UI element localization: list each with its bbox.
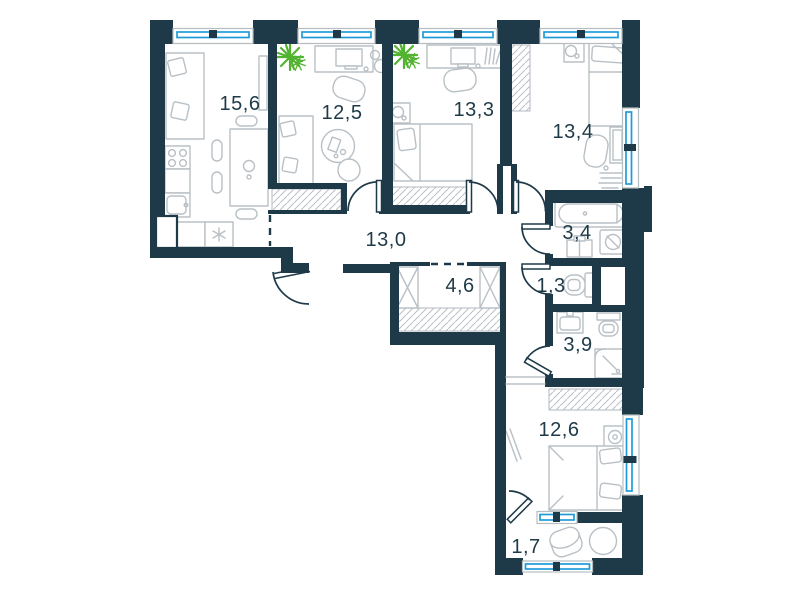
- room-area-label: 3,9: [563, 334, 592, 356]
- room-wc: [564, 273, 594, 297]
- room-area-label: 13,0: [366, 229, 407, 251]
- plant-icon: [277, 44, 308, 73]
- threshold: [506, 377, 545, 384]
- toilet-icon: [597, 313, 620, 320]
- chair-icon: [236, 116, 257, 126]
- room-living-kitchen: [164, 53, 268, 247]
- door-icon: [514, 181, 546, 213]
- wardrobe-icon: [397, 308, 501, 331]
- room-area-label: 13,4: [553, 121, 594, 143]
- monitor-icon: [451, 48, 475, 64]
- chair-icon: [236, 209, 257, 219]
- pillow-icon: [397, 128, 417, 151]
- balcony-table-icon: [590, 528, 617, 555]
- office-chair-icon: [330, 74, 367, 105]
- pillow-icon: [171, 102, 190, 121]
- stove-icon: [165, 146, 190, 169]
- coffee-table-icon: [338, 159, 360, 181]
- balcony-chair-icon: [547, 525, 584, 560]
- wardrobe-icon: [272, 189, 341, 211]
- pillow-icon: [167, 57, 186, 76]
- chair-icon: [212, 140, 222, 161]
- room-area-label: 1,3: [536, 275, 565, 297]
- pillow-icon: [280, 121, 297, 138]
- door-icon: [467, 181, 499, 213]
- room-area-label: 4,6: [445, 275, 474, 297]
- mirror-icon: [506, 429, 521, 461]
- room-area-label: 12,5: [322, 102, 363, 124]
- floor-plan-page: 15,6 12,5 13,3 13,4 13,0 3,4 1,3 4,6 3,9…: [0, 0, 800, 600]
- shaft: [600, 266, 626, 306]
- pillow-icon: [599, 483, 622, 499]
- pillow-icon: [599, 448, 622, 464]
- pillow-icon: [591, 46, 625, 63]
- chair-icon: [212, 172, 222, 193]
- room-area-label: 1,7: [511, 536, 540, 558]
- door-icon: [522, 224, 550, 254]
- room-area-label: 15,6: [220, 93, 261, 115]
- window-icon: [623, 415, 639, 495]
- floor-plan: 15,6 12,5 13,3 13,4 13,0 3,4 1,3 4,6 3,9…: [0, 0, 800, 600]
- room-area-label: 12,6: [539, 419, 580, 441]
- room-area-label: 3,4: [562, 222, 591, 244]
- dining-table-icon: [230, 129, 268, 206]
- duct: [156, 216, 177, 248]
- room-area-label: 13,3: [454, 99, 495, 121]
- wardrobe-icon: [391, 187, 467, 207]
- kitchen-counter-icon: [165, 169, 190, 193]
- room-balcony: [547, 525, 616, 560]
- wardrobe-icon: [549, 389, 627, 410]
- pillow-icon: [282, 157, 298, 173]
- room-bedroom-3: [564, 43, 628, 188]
- door-icon: [348, 181, 382, 213]
- monitor-icon: [336, 49, 362, 66]
- doors: [273, 181, 551, 523]
- plant-icon: [391, 42, 422, 71]
- books-icon: [599, 173, 622, 188]
- office-chair-icon: [443, 67, 478, 93]
- door-icon: [525, 346, 552, 376]
- kitchen-cabinet-icon: [177, 222, 205, 247]
- balcony-door-icon: [507, 491, 532, 523]
